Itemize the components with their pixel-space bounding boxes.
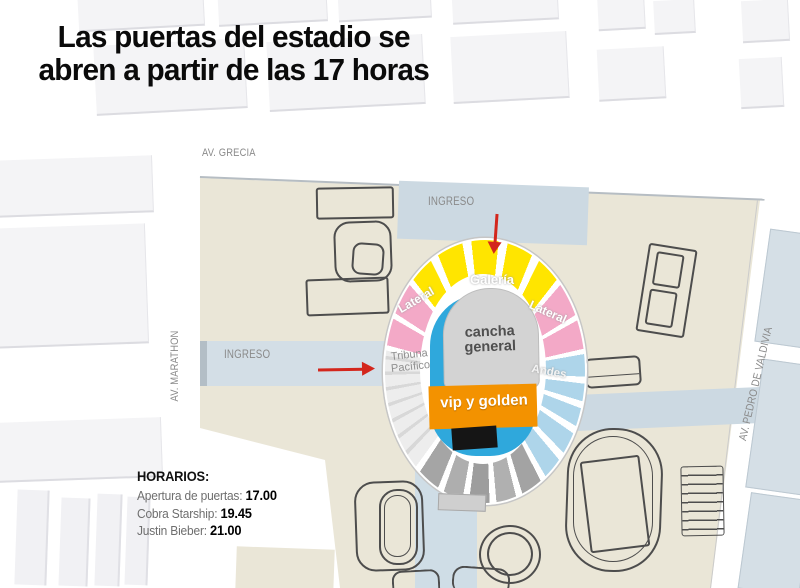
city-block — [0, 155, 154, 218]
schedule-row: Justin Bieber: 21.00 — [137, 522, 339, 540]
stage — [451, 425, 497, 450]
city-block — [58, 498, 90, 587]
ingreso-label-top: INGRESO — [428, 196, 474, 208]
building-outline — [451, 565, 511, 588]
city-block — [451, 0, 559, 25]
arrow-head — [362, 362, 375, 376]
city-block — [450, 31, 569, 104]
ingreso-arrow-top — [484, 213, 507, 258]
bench-line — [587, 373, 639, 378]
building-outline — [305, 277, 389, 317]
schedule-label: Justin Bieber: — [137, 523, 210, 538]
schedule-row: Apertura de puertas: 17.00 — [137, 487, 339, 505]
arrow-shaft — [318, 368, 364, 371]
street-label-grecia: AV. GRECIA — [202, 147, 256, 159]
street-label-marathon: AV. MARATHON — [169, 311, 181, 422]
title-line2: abren a partir de las 17 horas — [12, 53, 456, 86]
building-outline — [316, 186, 395, 219]
arrow-shaft — [493, 214, 498, 244]
ingreso-arrow-left — [318, 360, 378, 377]
city-block — [94, 494, 122, 587]
building-window — [644, 288, 677, 328]
schedule-time: 17.00 — [246, 487, 277, 503]
city-block — [14, 489, 49, 585]
schedule-time: 21.00 — [210, 522, 241, 538]
city-block — [0, 223, 149, 348]
schedule-label: Cobra Starship: — [137, 506, 220, 521]
map-area-patch — [235, 546, 335, 588]
arrow-head — [487, 241, 502, 254]
schedule-heading: HORARIOS: — [137, 468, 339, 484]
bench-outline — [584, 355, 642, 389]
building-window — [652, 251, 685, 289]
infographic-root: Galería Lateral Lateral Andes Tribuna Pa… — [0, 0, 800, 588]
schedule-label: Apertura de puertas: — [137, 488, 246, 503]
building-outline — [351, 242, 385, 276]
section-cancha-label: cancha general — [442, 323, 537, 357]
street-edge-shade — [200, 341, 207, 386]
velodrome-ring — [384, 495, 411, 557]
cancha-line2: general — [443, 339, 537, 357]
schedule-box: HORARIOS: Apertura de puertas: 17.00 Cob… — [137, 468, 339, 540]
stadium-entrance-tab — [438, 493, 487, 512]
page-title: Las puertas del estadio se abren a parti… — [12, 20, 456, 87]
schedule-row: Cobra Starship: 19.45 — [137, 505, 339, 523]
schedule-time: 19.45 — [220, 505, 251, 521]
city-block — [597, 0, 646, 31]
city-block — [597, 46, 667, 101]
city-block — [653, 0, 696, 35]
building-outline — [391, 569, 440, 588]
title-line1: Las puertas del estadio se — [12, 20, 456, 53]
street-right — [569, 387, 766, 432]
striped-lot-outline — [680, 466, 724, 537]
city-block — [738, 492, 800, 588]
field-outline — [580, 455, 651, 554]
city-block — [739, 57, 785, 109]
section-galeria-label: Galería — [452, 272, 532, 287]
ingreso-label-left: INGRESO — [224, 349, 270, 361]
city-block — [741, 0, 790, 43]
